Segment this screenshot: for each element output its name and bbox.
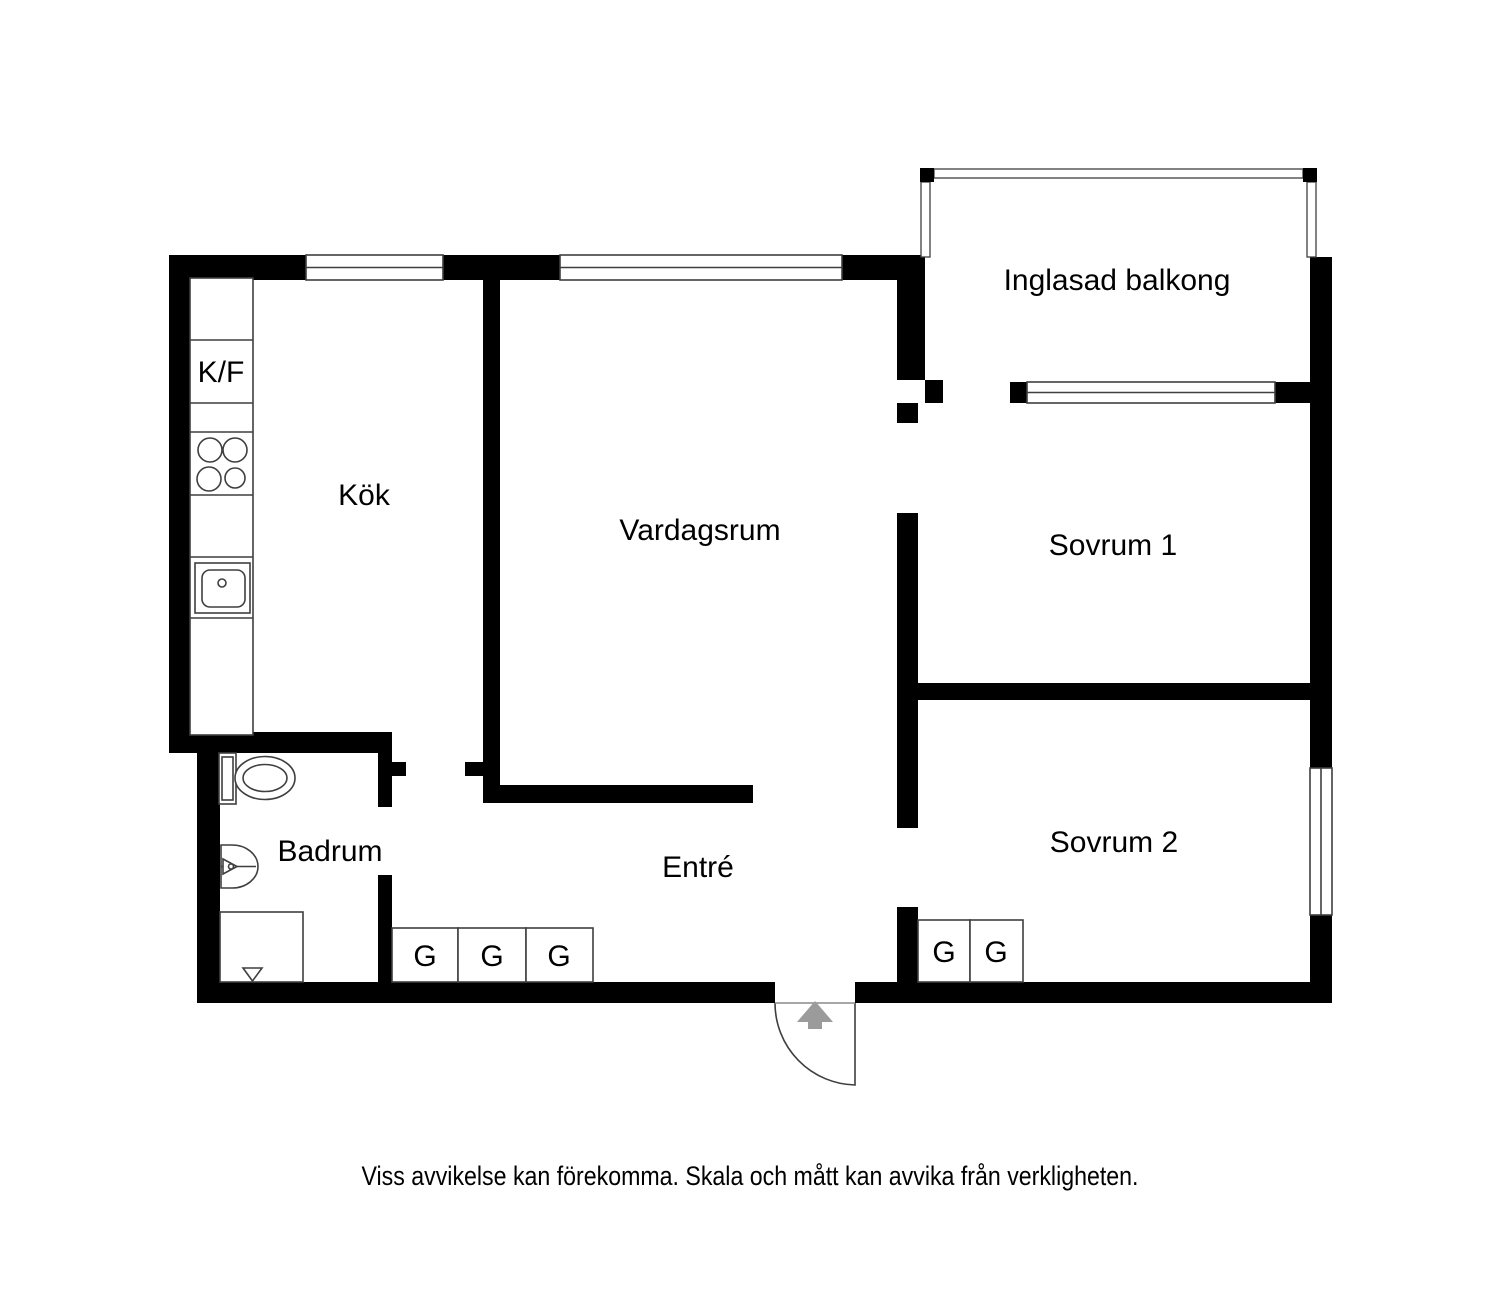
washbasin-icon — [221, 845, 258, 888]
balcony-glass-right — [1307, 182, 1316, 257]
fridge-freezer-label: K/F — [198, 356, 245, 389]
room-label-livingroom: Vardagsrum — [619, 514, 780, 547]
balcony-corner-left — [920, 168, 934, 182]
wall-bottom-left — [197, 982, 775, 1003]
wardrobe-label: G — [984, 936, 1007, 969]
balcony-glass-left — [921, 182, 930, 257]
wardrobe-label: G — [932, 936, 955, 969]
floor-plan: K/F — [0, 0, 1500, 1308]
room-label-bedroom1: Sovrum 1 — [1049, 529, 1177, 562]
wall-bathroom-door-stub — [392, 762, 406, 776]
kitchen-window — [306, 255, 443, 280]
toilet-icon — [219, 753, 295, 804]
wall-mid-lower — [897, 907, 918, 1003]
room-label-entry: Entré — [662, 851, 734, 884]
entry-wardrobes: G G G — [392, 928, 593, 982]
wall-mid-upper — [897, 403, 918, 423]
wardrobe-label: G — [413, 940, 436, 973]
windows — [306, 255, 1332, 915]
room-label-balcony: Inglasad balkong — [1004, 264, 1231, 297]
balcony-glazing — [920, 168, 1317, 257]
counter-outline — [190, 278, 253, 735]
wall-livingroom-bottom — [483, 785, 753, 803]
shower-icon — [220, 912, 303, 982]
wall-balcony-door-stub — [925, 380, 943, 403]
entrance-arrow-icon — [797, 1001, 833, 1029]
disclaimer-text: Viss avvikelse kan förekomma. Skala och … — [362, 1161, 1139, 1191]
room-label-kitchen: Kök — [338, 479, 391, 512]
wall-left-lower — [197, 753, 220, 1003]
wall-mid-center — [897, 513, 918, 828]
wall-kitchen-livingroom — [483, 255, 500, 785]
wardrobe-label: G — [547, 940, 570, 973]
kitchen-counter: K/F — [190, 278, 253, 735]
wall-kitchen-door-stub — [465, 762, 483, 776]
wardrobe-label: G — [480, 940, 503, 973]
wall-right-lower — [1310, 915, 1332, 1003]
entrance-door — [775, 1001, 855, 1085]
livingroom-window — [560, 255, 842, 280]
room-labels: Kök Vardagsrum Inglasad balkong Sovrum 1… — [277, 264, 1230, 884]
bedroom2-wardrobes: G G — [918, 920, 1023, 982]
wall-bedroom1-bottom — [897, 683, 1332, 700]
wall-balcony-window-post — [1010, 382, 1027, 403]
balcony-corner-right — [1303, 168, 1317, 182]
walls — [169, 255, 1332, 1003]
wall-left-upper — [169, 255, 190, 753]
room-label-bedroom2: Sovrum 2 — [1050, 826, 1178, 859]
wall-bathroom-right-upper — [378, 732, 392, 807]
wall-balcony-window-right — [1275, 382, 1332, 403]
wall-livingroom-balcony — [897, 255, 925, 380]
wall-bottom-right — [855, 982, 1332, 1003]
balcony-window — [1027, 382, 1275, 403]
floor-plan-page: K/F — [0, 0, 1500, 1308]
bedroom2-window — [1310, 768, 1332, 915]
room-label-bathroom: Badrum — [277, 835, 382, 868]
wall-top-mid — [443, 255, 560, 280]
wall-bathroom-right-lower — [378, 875, 392, 982]
sink-icon — [195, 563, 250, 613]
balcony-glass-top — [934, 169, 1303, 178]
